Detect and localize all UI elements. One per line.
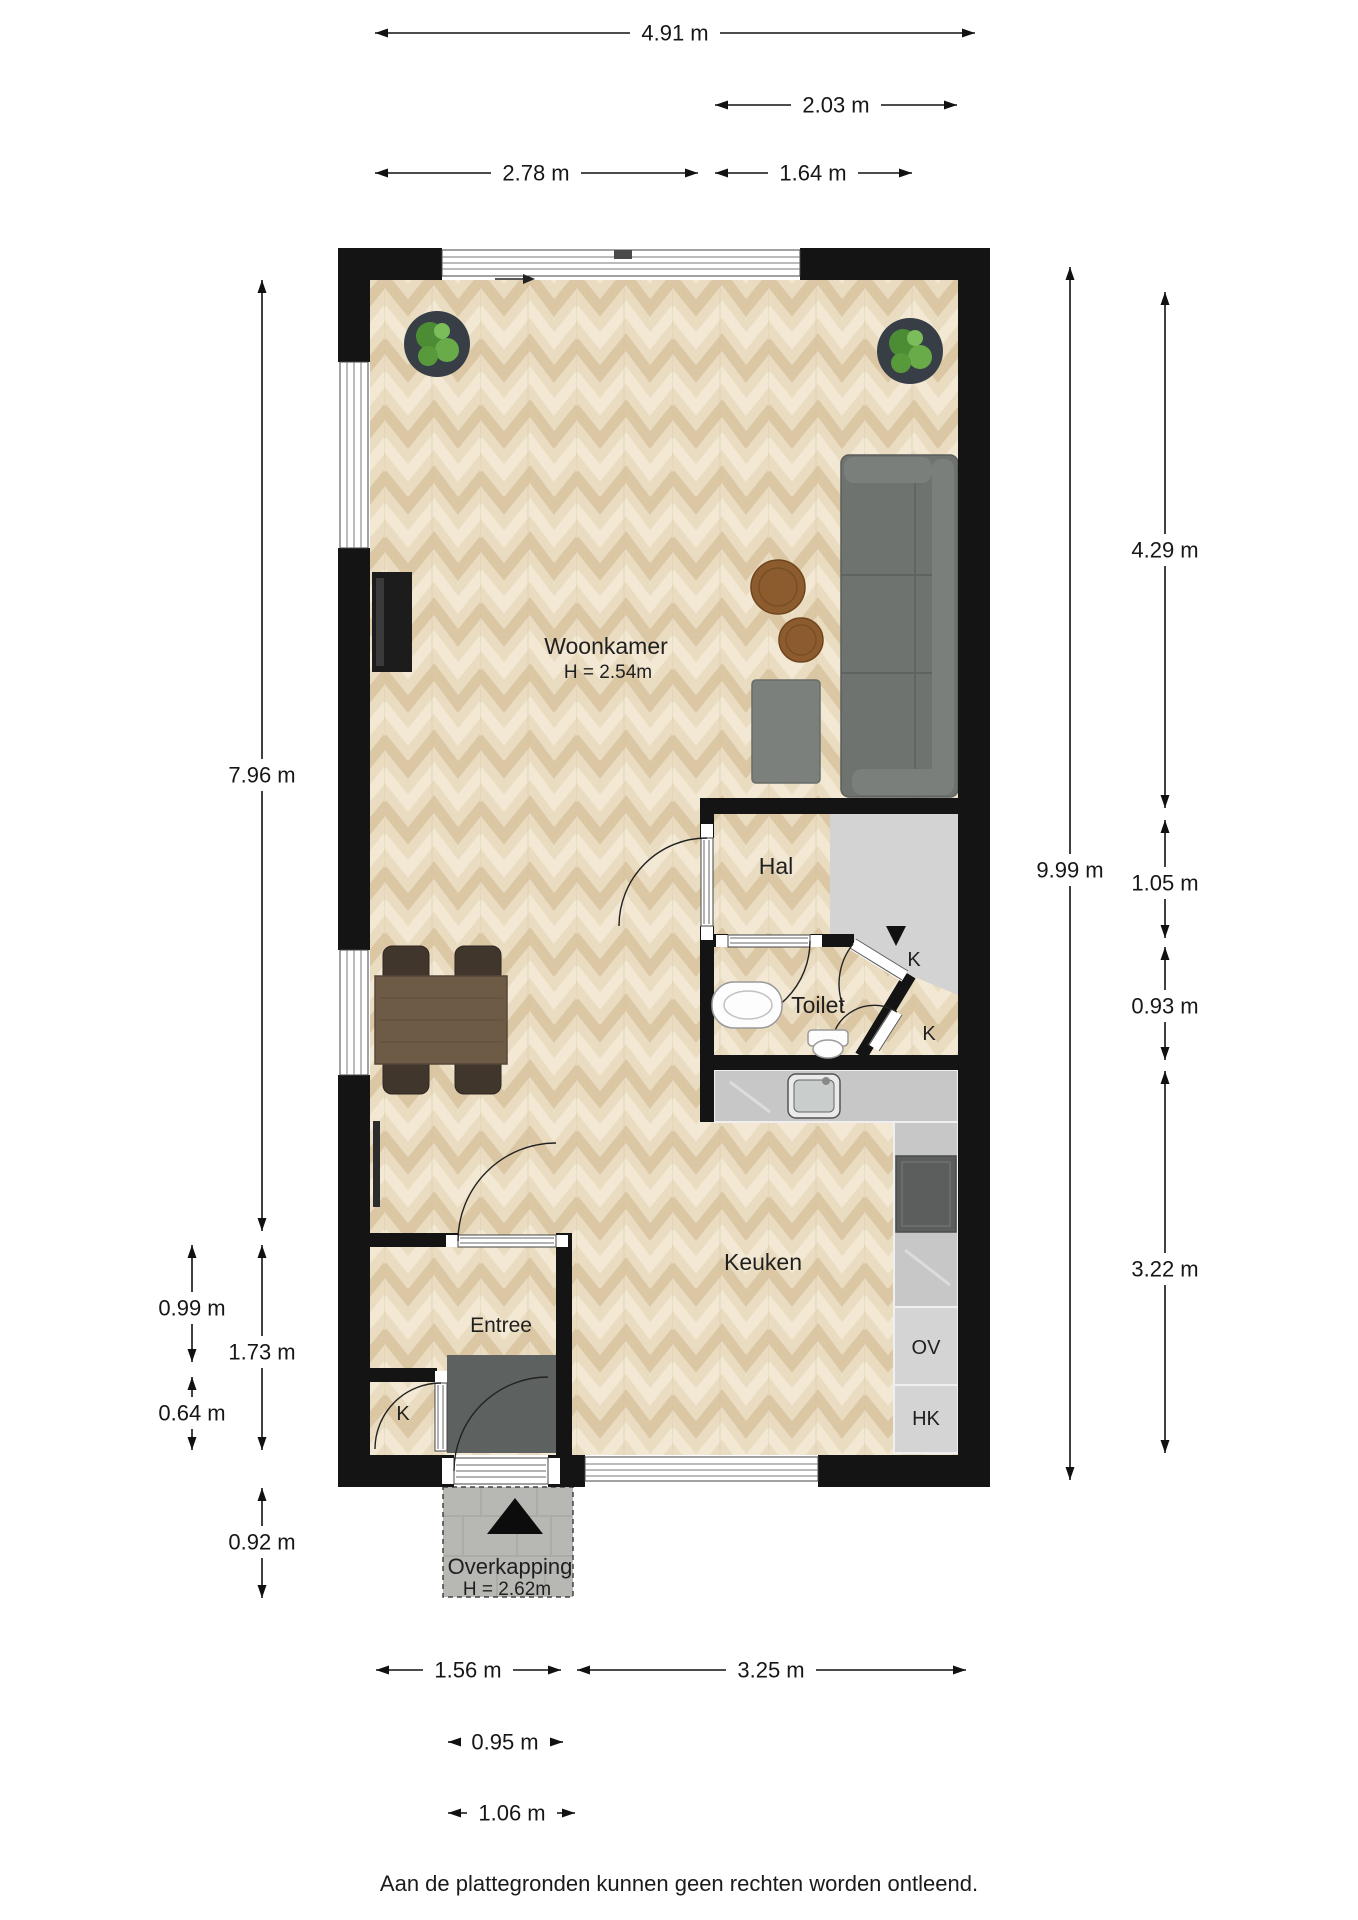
door-jamb [810, 935, 822, 947]
room-height-woonkamer: H = 2.54m [564, 662, 652, 683]
wall [370, 1233, 458, 1247]
dimension-label: 4.29 m [1131, 538, 1198, 563]
dimension: 1.05 m [1131, 820, 1198, 938]
plant [404, 311, 470, 377]
closet-door [435, 1383, 447, 1451]
dimension-label: 1.56 m [434, 1658, 501, 1683]
dimension-label: 0.93 m [1131, 994, 1198, 1019]
room-label-entree: Entree [470, 1314, 532, 1337]
door-jamb [701, 926, 713, 940]
oven-label: OV [912, 1337, 942, 1359]
room-height-overkapping: H = 2.62m [463, 1579, 551, 1600]
dimension-label: 1.05 m [1131, 871, 1198, 896]
tall-cabinet-label: HK [912, 1408, 940, 1430]
hal-door [701, 838, 713, 926]
dimension-label: 0.95 m [471, 1730, 538, 1755]
toilet-door [728, 935, 810, 947]
dimension: 1.64 m [715, 161, 912, 186]
door-jamb [446, 1235, 458, 1247]
closet-label-3: K [396, 1403, 410, 1425]
dimension: 0.92 m [228, 1488, 295, 1598]
dimension: 3.25 m [577, 1658, 966, 1683]
dimension-label: 1.06 m [478, 1801, 545, 1826]
dimension: 1.73 m [228, 1245, 295, 1450]
dimension-label: 4.91 m [641, 21, 708, 46]
window-top [442, 250, 800, 276]
door-jamb [435, 1371, 447, 1383]
wall [338, 1455, 454, 1487]
dimension: 7.96 m [228, 280, 295, 1231]
wall [556, 1233, 572, 1455]
dimension-label: 9.99 m [1036, 858, 1103, 883]
dimension: 2.78 m [375, 161, 698, 186]
floor-plan-page: Woonkamer H = 2.54m Hal Toilet K K Keuke… [0, 0, 1358, 1920]
toilet-bowl [813, 1040, 843, 1058]
footer-disclaimer: Aan de plattegronden kunnen geen rechten… [380, 1871, 978, 1896]
closet-label-2: K [922, 1023, 936, 1045]
wall [338, 548, 370, 950]
dimension: 1.56 m [376, 1658, 561, 1683]
entree-door [458, 1235, 556, 1247]
doormat [447, 1355, 557, 1453]
dimension: 9.99 m [1036, 267, 1103, 1480]
dimension-label: 3.25 m [737, 1658, 804, 1683]
dimension-label: 2.78 m [502, 161, 569, 186]
dimension-label: 0.92 m [228, 1530, 295, 1555]
dimension: 4.91 m [375, 21, 975, 46]
plant [877, 318, 943, 384]
room-label-woonkamer: Woonkamer [544, 633, 668, 659]
faucet-icon [822, 1077, 830, 1085]
room-label-overkapping: Overkapping [448, 1554, 573, 1579]
floor-plan-svg: Woonkamer H = 2.54m Hal Toilet K K Keuke… [0, 0, 1358, 1920]
dimension-label: 1.64 m [779, 161, 846, 186]
dimension: 1.06 m [448, 1801, 575, 1826]
dimension: 2.03 m [715, 93, 957, 118]
dimension-label: 2.03 m [802, 93, 869, 118]
wall [700, 926, 714, 1122]
wall [338, 1075, 370, 1487]
dimension: 3.22 m [1131, 1071, 1198, 1453]
dimension: 0.95 m [448, 1730, 563, 1755]
tv-unit-detail [376, 578, 384, 666]
dimension-label: 0.99 m [158, 1296, 225, 1321]
wall [338, 248, 370, 362]
ottoman [752, 680, 820, 783]
wall [370, 1368, 437, 1382]
sofa [841, 455, 958, 797]
door-jamb [716, 935, 728, 947]
door-jamb [442, 1458, 454, 1484]
dimension: 4.29 m [1131, 292, 1198, 808]
wall [700, 798, 958, 814]
dimension: 0.64 m [158, 1377, 225, 1450]
door-jamb [548, 1458, 560, 1484]
room-label-hal: Hal [759, 853, 794, 879]
dimension-label: 1.73 m [228, 1340, 295, 1365]
door-jamb [701, 824, 713, 838]
kitchen-sink-basin [794, 1080, 834, 1112]
door-jamb [556, 1235, 568, 1247]
window-left-2 [340, 950, 368, 1075]
dimension-label: 7.96 m [228, 763, 295, 788]
wall [958, 248, 990, 1487]
window-bottom [585, 1457, 818, 1481]
dimension: 0.93 m [1131, 947, 1198, 1060]
window-left-1 [340, 362, 368, 548]
wall [818, 1455, 990, 1487]
dimension-label: 0.64 m [158, 1401, 225, 1426]
radiator [373, 1121, 380, 1207]
closet-label-1: K [907, 949, 921, 971]
dimension-label: 3.22 m [1131, 1257, 1198, 1282]
room-label-toilet: Toilet [791, 992, 845, 1018]
room-label-keuken: Keuken [724, 1249, 802, 1275]
dimension: 0.99 m [158, 1245, 225, 1362]
cooktop [896, 1156, 956, 1232]
